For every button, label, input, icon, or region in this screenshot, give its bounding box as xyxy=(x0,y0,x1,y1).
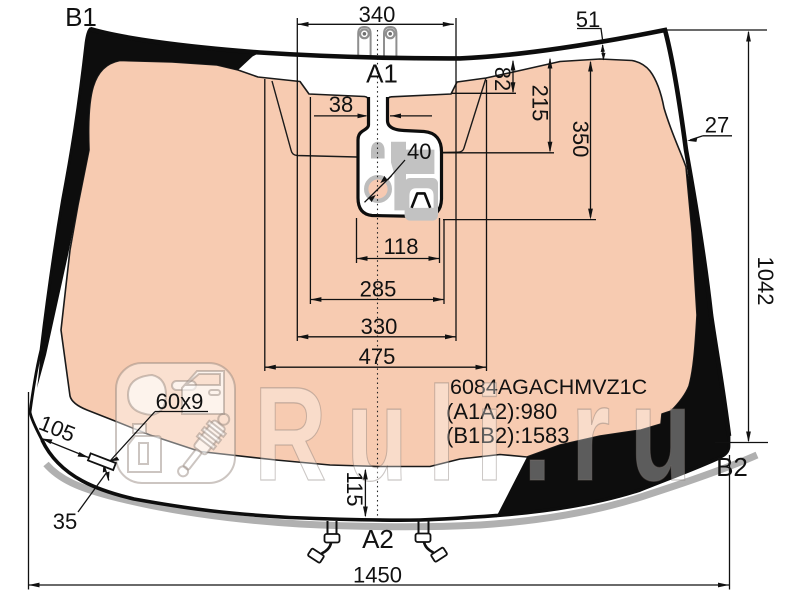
svg-text:51: 51 xyxy=(576,7,600,32)
svg-text:330: 330 xyxy=(361,314,398,339)
svg-text:115: 115 xyxy=(342,471,367,506)
svg-text:27: 27 xyxy=(705,113,729,138)
svg-text:40: 40 xyxy=(407,139,431,164)
svg-text:475: 475 xyxy=(359,344,396,369)
svg-text:A2: A2 xyxy=(362,524,394,554)
svg-text:285: 285 xyxy=(360,277,397,302)
svg-text:Ruli.ru: Ruli.ru xyxy=(254,360,711,509)
svg-text:350: 350 xyxy=(568,121,593,158)
svg-text:B1: B1 xyxy=(65,2,97,32)
svg-text:A1: A1 xyxy=(366,59,398,89)
svg-text:38: 38 xyxy=(329,92,353,117)
svg-text:215: 215 xyxy=(528,85,553,122)
svg-text:35: 35 xyxy=(53,509,77,534)
svg-text:B2: B2 xyxy=(716,452,748,482)
svg-text:118: 118 xyxy=(383,234,418,259)
svg-text:1042: 1042 xyxy=(753,257,778,306)
svg-text:82: 82 xyxy=(490,67,515,91)
svg-text:1450: 1450 xyxy=(353,563,402,588)
svg-text:60x9: 60x9 xyxy=(156,389,204,414)
svg-text:340: 340 xyxy=(359,2,396,27)
